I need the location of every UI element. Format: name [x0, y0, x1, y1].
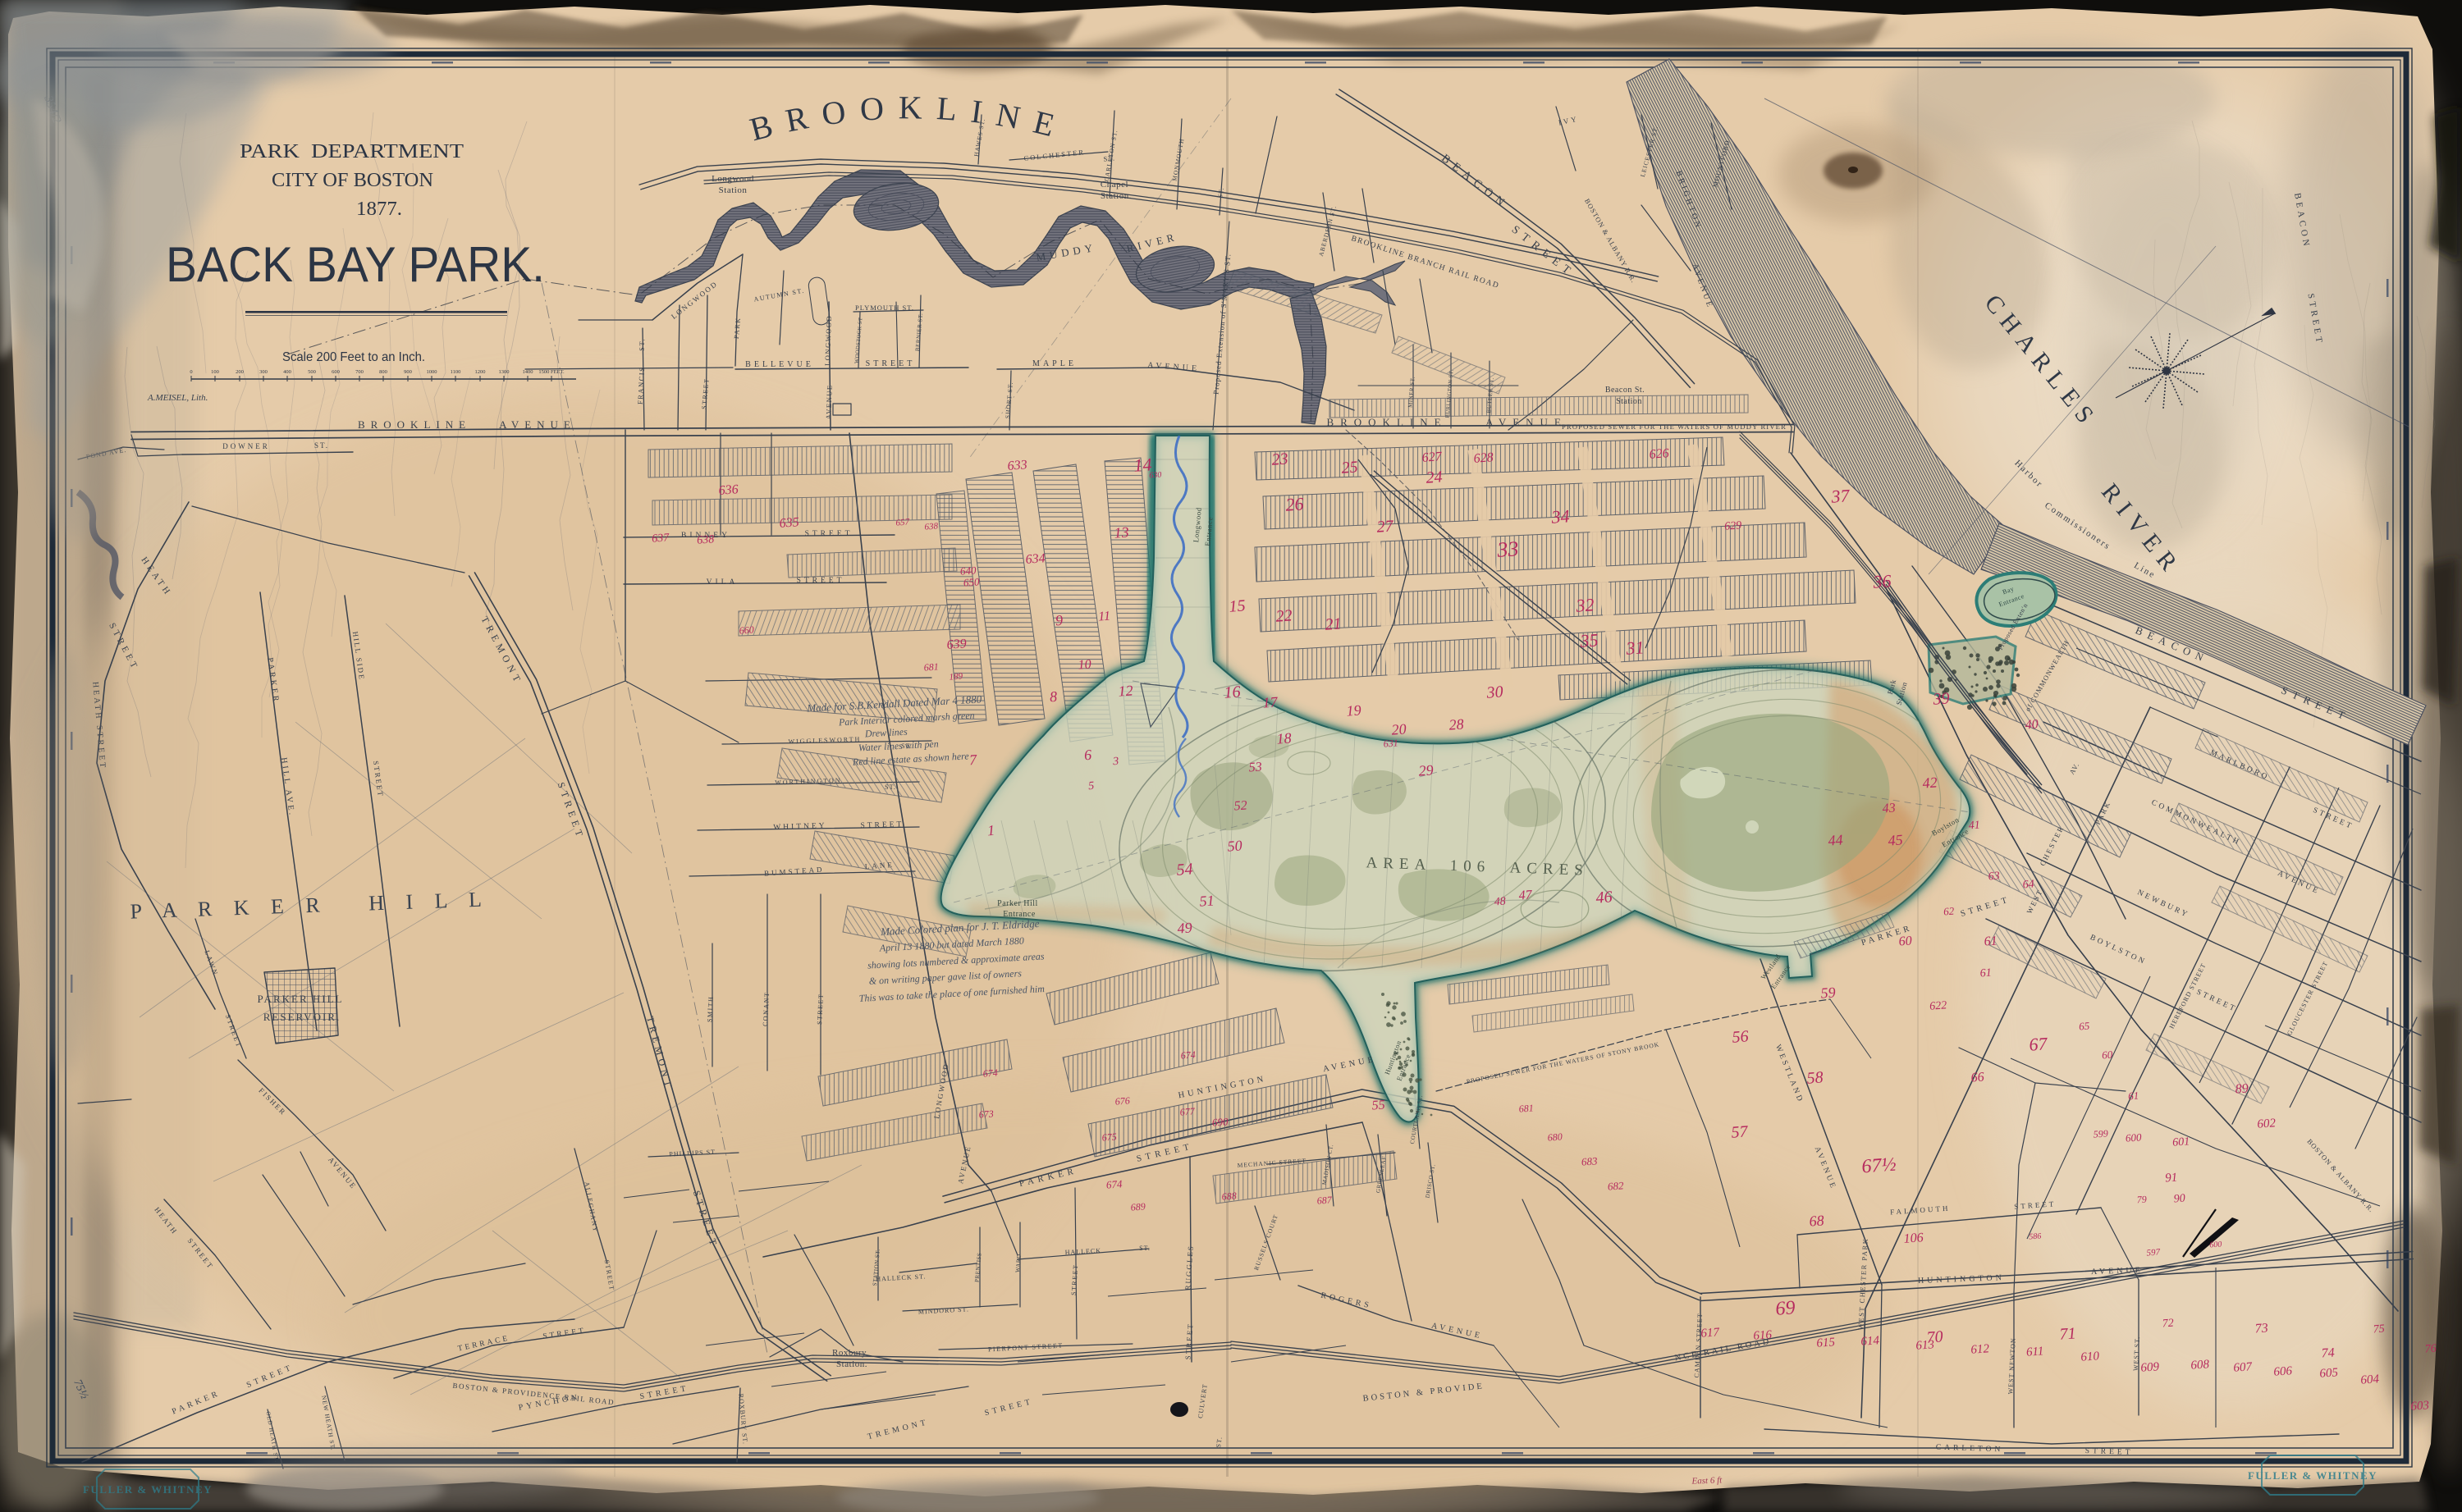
svg-text:622: 622 [1929, 999, 1947, 1012]
svg-text:Station: Station [719, 185, 748, 195]
svg-text:1877.: 1877. [356, 199, 402, 220]
svg-text:46: 46 [1595, 888, 1613, 907]
svg-text:650: 650 [963, 575, 980, 588]
svg-text:BROOKLINE: BROOKLINE [1326, 416, 1447, 428]
svg-text:610: 610 [2080, 1350, 2100, 1364]
svg-text:Drew lines: Drew lines [864, 726, 908, 740]
svg-text:675: 675 [1101, 1131, 1117, 1143]
svg-text:DOWNER: DOWNER [222, 442, 270, 450]
svg-text:690: 690 [1211, 1115, 1229, 1128]
svg-text:37: 37 [1830, 485, 1851, 507]
svg-text:STREET: STREET [797, 577, 845, 585]
svg-text:638: 638 [924, 521, 939, 532]
svg-text:ST.: ST. [1139, 1245, 1151, 1252]
svg-text:59: 59 [1820, 984, 1836, 1001]
svg-text:605: 605 [2319, 1366, 2339, 1381]
svg-text:45: 45 [1888, 831, 1903, 848]
svg-text:56: 56 [1732, 1027, 1749, 1046]
svg-text:23: 23 [1271, 450, 1288, 468]
svg-text:SMITH: SMITH [706, 995, 715, 1022]
svg-text:35: 35 [1579, 629, 1599, 651]
svg-text:36: 36 [1872, 570, 1892, 592]
svg-text:627: 627 [1421, 450, 1443, 465]
svg-text:53: 53 [1248, 760, 1262, 774]
svg-text:683: 683 [1581, 1154, 1598, 1167]
svg-text:629: 629 [1724, 519, 1742, 532]
svg-text:604: 604 [2360, 1373, 2380, 1387]
svg-text:24: 24 [1425, 468, 1443, 486]
svg-text:608: 608 [2190, 1358, 2210, 1373]
svg-text:BROOKLINE: BROOKLINE [358, 418, 471, 431]
svg-text:1300: 1300 [499, 369, 510, 375]
svg-text:100: 100 [211, 369, 219, 375]
svg-text:607: 607 [2233, 1360, 2254, 1375]
svg-text:674: 674 [1180, 1048, 1196, 1061]
svg-text:21: 21 [1325, 614, 1342, 633]
svg-text:626: 626 [1649, 446, 1669, 462]
svg-text:44: 44 [1828, 831, 1843, 848]
svg-text:689: 689 [1130, 1200, 1146, 1213]
svg-text:Station: Station [1616, 397, 1642, 406]
svg-text:3: 3 [1112, 756, 1119, 769]
svg-text:677: 677 [1179, 1105, 1196, 1117]
svg-text:681: 681 [923, 660, 939, 673]
svg-text:682: 682 [1607, 1179, 1624, 1192]
svg-text:602: 602 [2257, 1117, 2277, 1131]
svg-text:630: 630 [1149, 470, 1162, 480]
svg-text:639: 639 [946, 637, 967, 652]
svg-text:55: 55 [1371, 1098, 1385, 1112]
svg-text:13: 13 [1114, 523, 1129, 541]
svg-text:597: 597 [2146, 1247, 2161, 1258]
svg-text:65: 65 [2079, 1020, 2091, 1033]
svg-text:42: 42 [1922, 774, 1938, 791]
svg-text:12: 12 [1118, 682, 1133, 699]
svg-text:637: 637 [652, 532, 670, 545]
svg-text:71: 71 [2059, 1324, 2076, 1343]
svg-text:674: 674 [982, 1067, 998, 1079]
svg-text:18: 18 [1276, 729, 1292, 747]
svg-text:40: 40 [2025, 717, 2039, 732]
svg-text:68: 68 [1809, 1212, 1824, 1229]
svg-text:617: 617 [1700, 1326, 1721, 1341]
svg-text:681: 681 [1518, 1102, 1534, 1114]
svg-text:48: 48 [1494, 896, 1506, 909]
svg-text:ST.: ST. [1215, 1436, 1224, 1448]
svg-text:27: 27 [1376, 517, 1394, 536]
svg-text:600: 600 [2209, 1240, 2222, 1249]
svg-text:43: 43 [1882, 801, 1896, 815]
svg-text:PARK DEPARTMENT: PARK DEPARTMENT [240, 141, 464, 162]
svg-text:674: 674 [1105, 1177, 1123, 1190]
svg-text:687: 687 [1316, 1194, 1333, 1206]
svg-text:628: 628 [1473, 450, 1494, 466]
svg-text:606: 606 [2273, 1364, 2293, 1379]
svg-text:AVENUE: AVENUE [2091, 1266, 2144, 1277]
svg-text:60: 60 [2102, 1048, 2114, 1062]
svg-text:25: 25 [1341, 458, 1358, 477]
svg-text:22: 22 [1275, 606, 1293, 625]
svg-text:Station.: Station. [1101, 191, 1132, 201]
svg-text:60: 60 [1898, 934, 1912, 948]
svg-text:58: 58 [1806, 1068, 1824, 1087]
svg-text:26: 26 [1285, 493, 1305, 514]
svg-text:1: 1 [986, 822, 995, 839]
svg-text:RESERVOIR.: RESERVOIR. [263, 1011, 341, 1023]
svg-text:189: 189 [949, 671, 963, 682]
svg-text:611: 611 [2025, 1345, 2043, 1359]
svg-text:64: 64 [2022, 879, 2034, 892]
svg-text:75: 75 [2373, 1323, 2385, 1336]
svg-text:0: 0 [190, 369, 192, 375]
svg-text:Station.: Station. [836, 1359, 867, 1369]
svg-text:PLYMOUTH ST.: PLYMOUTH ST. [855, 304, 914, 312]
svg-text:61: 61 [2128, 1089, 2139, 1103]
svg-text:900: 900 [404, 369, 412, 375]
svg-text:601: 601 [2172, 1135, 2190, 1149]
svg-text:676: 676 [1114, 1094, 1130, 1107]
svg-text:400: 400 [283, 369, 291, 375]
svg-text:66: 66 [1970, 1070, 1984, 1085]
svg-text:200: 200 [236, 369, 244, 375]
svg-text:90: 90 [2173, 1193, 2185, 1206]
svg-text:69: 69 [1775, 1297, 1796, 1320]
svg-text:MAPLE: MAPLE [1032, 359, 1077, 368]
svg-text:STREET: STREET [860, 820, 904, 830]
svg-text:6: 6 [1083, 747, 1091, 764]
svg-text:Beacon St.: Beacon St. [1605, 386, 1645, 395]
svg-text:Scale 200 Feet to an Inch.: Scale 200 Feet to an Inch. [282, 350, 425, 364]
svg-text:599: 599 [2093, 1127, 2108, 1140]
svg-text:17: 17 [1262, 693, 1279, 710]
svg-text:106: 106 [1903, 1231, 1924, 1246]
svg-text:657: 657 [895, 517, 910, 528]
svg-text:AVENUE: AVENUE [1485, 416, 1567, 428]
svg-text:67: 67 [2029, 1033, 2049, 1055]
svg-text:BELLEVUE: BELLEVUE [745, 360, 814, 369]
svg-text:633: 633 [1007, 458, 1027, 473]
svg-text:91: 91 [2165, 1172, 2178, 1185]
svg-text:673: 673 [978, 1108, 994, 1120]
svg-text:8: 8 [1049, 688, 1057, 706]
svg-text:61: 61 [1979, 967, 1992, 980]
svg-text:800: 800 [379, 369, 387, 375]
svg-text:600: 600 [332, 369, 340, 375]
svg-text:680: 680 [1547, 1131, 1563, 1143]
svg-text:19: 19 [1346, 701, 1361, 719]
svg-text:BACK BAY PARK.: BACK BAY PARK. [166, 237, 545, 292]
svg-text:52: 52 [1233, 798, 1247, 813]
svg-text:500: 500 [308, 369, 316, 375]
svg-text:9: 9 [1055, 612, 1063, 629]
svg-text:11: 11 [1098, 610, 1111, 624]
svg-text:47: 47 [1518, 888, 1533, 902]
svg-text:72: 72 [2162, 1318, 2174, 1331]
svg-text:54: 54 [1176, 860, 1193, 879]
svg-text:615: 615 [1816, 1336, 1836, 1350]
svg-text:5: 5 [1088, 780, 1095, 793]
svg-text:609: 609 [2140, 1360, 2160, 1375]
svg-text:20: 20 [1391, 720, 1407, 738]
svg-text:62: 62 [1943, 905, 1956, 918]
svg-text:89: 89 [2235, 1081, 2249, 1096]
svg-text:638: 638 [697, 533, 715, 546]
svg-text:ST.: ST. [1103, 153, 1115, 162]
svg-text:30: 30 [1485, 683, 1503, 701]
svg-text:33: 33 [1495, 537, 1519, 562]
svg-text:300: 300 [259, 369, 268, 375]
svg-text:32: 32 [1575, 594, 1595, 616]
svg-text:586: 586 [2029, 1231, 2042, 1241]
svg-text:AVENUE: AVENUE [824, 384, 833, 419]
svg-text:ST.: ST. [638, 338, 647, 351]
svg-text:FULLER & WHITNEY: FULLER & WHITNEY [2248, 1469, 2377, 1482]
svg-text:Parker Hill: Parker Hill [997, 899, 1038, 908]
svg-text:10: 10 [1078, 657, 1091, 672]
svg-text:635: 635 [779, 515, 799, 531]
svg-text:16: 16 [1224, 683, 1241, 701]
svg-text:50: 50 [1227, 837, 1242, 854]
svg-text:634: 634 [1025, 551, 1046, 567]
svg-text:ST.: ST. [314, 441, 329, 450]
svg-text:49: 49 [1177, 919, 1192, 936]
svg-text:ST.: ST. [885, 783, 896, 791]
svg-text:63: 63 [1988, 870, 2000, 884]
svg-text:1000: 1000 [427, 369, 437, 375]
svg-text:CITY OF BOSTON: CITY OF BOSTON [272, 170, 433, 191]
svg-text:AVENUE: AVENUE [499, 418, 576, 431]
svg-text:700: 700 [355, 369, 364, 375]
svg-text:74: 74 [2321, 1345, 2335, 1360]
svg-text:PARKER HILL: PARKER HILL [258, 993, 344, 1005]
svg-text:Longwood: Longwood [712, 174, 754, 184]
svg-text:613: 613 [1915, 1338, 1935, 1353]
svg-text:29: 29 [1418, 761, 1434, 779]
svg-text:614: 614 [1860, 1334, 1880, 1349]
svg-text:631: 631 [1383, 737, 1398, 749]
svg-text:28: 28 [1448, 715, 1464, 733]
svg-text:660: 660 [739, 624, 754, 636]
svg-text:57: 57 [1731, 1122, 1749, 1141]
svg-text:FULLER & WHITNEY: FULLER & WHITNEY [83, 1483, 213, 1496]
svg-text:STREET: STREET [2084, 1447, 2133, 1457]
svg-text:VILA: VILA [707, 578, 739, 587]
svg-text:61: 61 [1984, 934, 1998, 948]
svg-text:East 6 ft: East 6 ft [1691, 1475, 1723, 1486]
svg-text:1100: 1100 [451, 369, 461, 375]
svg-text:73: 73 [2254, 1321, 2268, 1336]
svg-text:STREET: STREET [866, 359, 916, 368]
svg-text:79: 79 [2136, 1194, 2147, 1206]
svg-text:31: 31 [1625, 637, 1645, 659]
svg-text:67½: 67½ [1861, 1154, 1897, 1178]
svg-text:612: 612 [1970, 1342, 1990, 1357]
svg-text:PROPOSED SEWER FOR THE WATERS: PROPOSED SEWER FOR THE WATERS OF MUDDY R… [1562, 423, 1787, 431]
svg-text:39: 39 [1932, 689, 1950, 708]
svg-text:688: 688 [1221, 1190, 1237, 1202]
svg-text:616: 616 [1753, 1328, 1773, 1343]
svg-text:STREET: STREET [805, 530, 853, 538]
svg-text:636: 636 [718, 482, 739, 498]
svg-text:A.MEISEL, Lith.: A.MEISEL, Lith. [147, 393, 208, 403]
svg-text:34: 34 [1550, 505, 1571, 528]
svg-text:51: 51 [1199, 892, 1215, 909]
svg-text:76: 76 [2424, 1343, 2437, 1356]
svg-text:1200: 1200 [475, 369, 486, 375]
svg-text:603: 603 [2410, 1399, 2430, 1414]
svg-text:15: 15 [1229, 596, 1246, 615]
svg-text:Roxbury: Roxbury [832, 1348, 867, 1358]
svg-text:600: 600 [2125, 1131, 2142, 1144]
svg-text:1400: 1400 [523, 369, 533, 375]
svg-text:41: 41 [1968, 820, 1980, 833]
